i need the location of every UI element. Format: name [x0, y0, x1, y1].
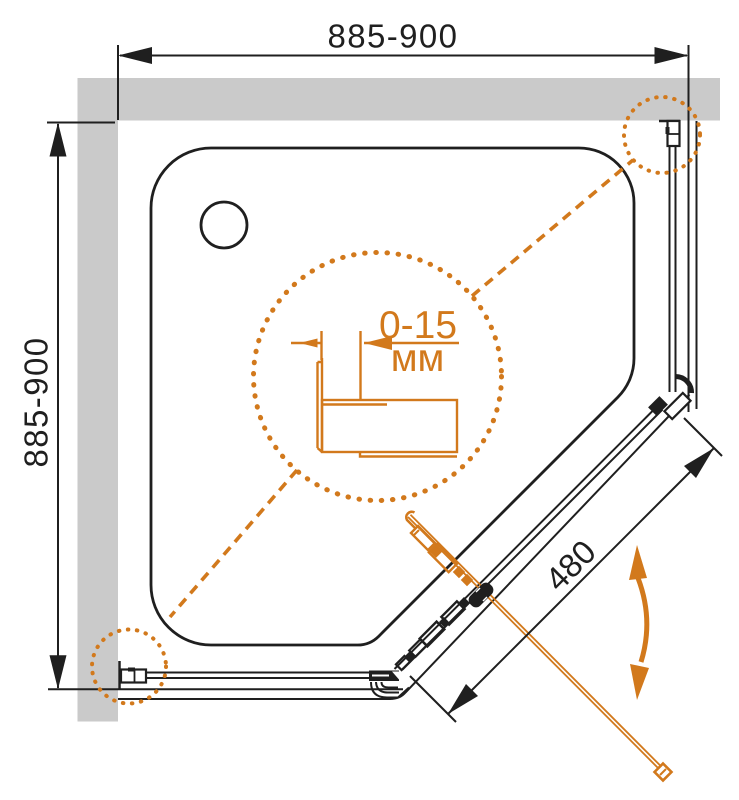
svg-text:885-900: 885-900 [18, 337, 55, 468]
svg-text:885-900: 885-900 [328, 18, 459, 55]
svg-text:мм: мм [391, 337, 445, 380]
